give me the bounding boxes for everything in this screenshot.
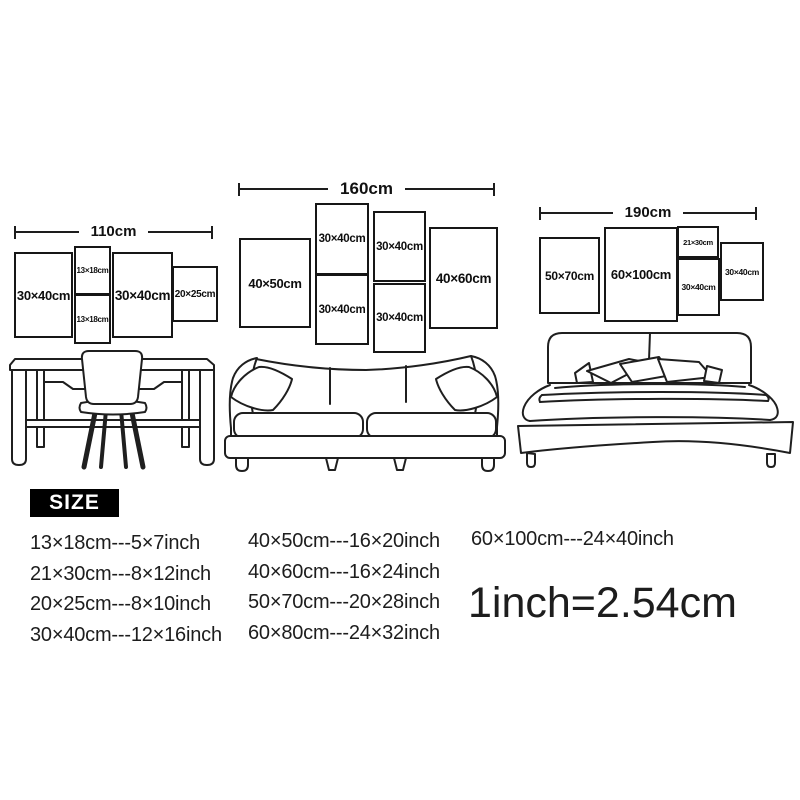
arrow-right-tick [493, 183, 495, 196]
size-conversion-row: 50×70cm---20×28inch [248, 592, 440, 612]
frame-30x40cm: 30×40cm [720, 242, 764, 301]
frame-13x18cm: 13×18cm [74, 246, 111, 295]
frame-30x40cm: 30×40cm [373, 211, 426, 282]
arrow-line [16, 231, 79, 233]
arrow-line [240, 188, 328, 190]
frame-21x30cm: 21×30cm [677, 226, 719, 258]
size-column-1: 13×18cm---5×7inch 21×30cm---8×12inch 20×… [30, 533, 222, 655]
frame-20x25cm: 20×25cm [172, 266, 218, 322]
size-conversion-row: 13×18cm---5×7inch [30, 533, 222, 553]
size-guide-diagram: 110cm 30×40cm 13×18cm 13×18cm 30×40cm 20… [0, 0, 800, 800]
arrow-right-tick [755, 207, 757, 220]
inch-conversion-note: 1inch=2.54cm [468, 581, 737, 625]
frame-30x40cm: 30×40cm [373, 283, 426, 353]
arrow-line [405, 188, 493, 190]
size-conversion-row: 40×60cm---16×24inch [248, 562, 440, 582]
frame-13x18cm: 13×18cm [74, 294, 111, 344]
frame-60x100cm: 60×100cm [604, 227, 678, 322]
frame-40x50cm: 40×50cm [239, 238, 311, 328]
size-column-2: 40×50cm---16×20inch 40×60cm---16×24inch … [248, 531, 440, 653]
frame-30x40cm: 30×40cm [315, 274, 369, 345]
size-conversion-row: 21×30cm---8×12inch [30, 564, 222, 584]
frame-30x40cm: 30×40cm [112, 252, 173, 338]
width-arrow-110cm: 110cm [14, 225, 213, 239]
sofa-illustration [218, 346, 512, 480]
width-arrow-label: 110cm [79, 225, 149, 239]
size-conversion-row: 40×50cm---16×20inch [248, 531, 440, 551]
size-column-3: 60×100cm---24×40inch [471, 529, 674, 560]
frame-30x40cm: 30×40cm [315, 203, 369, 275]
width-arrow-190cm: 190cm [539, 206, 757, 220]
arrow-right-tick [211, 226, 213, 239]
size-conversion-row: 60×100cm---24×40inch [471, 529, 674, 549]
width-arrow-label: 190cm [613, 206, 684, 220]
size-conversion-row: 30×40cm---12×16inch [30, 625, 222, 645]
frame-40x60cm: 40×60cm [429, 227, 498, 329]
desk-with-chair-illustration [8, 350, 220, 472]
arrow-line [541, 212, 613, 214]
frame-30x40cm: 30×40cm [677, 258, 720, 316]
size-conversion-row: 60×80cm---24×32inch [248, 623, 440, 643]
width-arrow-label: 160cm [328, 182, 405, 196]
arrow-line [148, 231, 211, 233]
frame-30x40cm: 30×40cm [14, 252, 73, 338]
frame-50x70cm: 50×70cm [539, 237, 600, 314]
width-arrow-160cm: 160cm [238, 182, 495, 196]
size-heading: SIZE [30, 489, 119, 517]
size-conversion-row: 20×25cm---8×10inch [30, 594, 222, 614]
arrow-line [683, 212, 755, 214]
double-bed-illustration [513, 330, 800, 476]
